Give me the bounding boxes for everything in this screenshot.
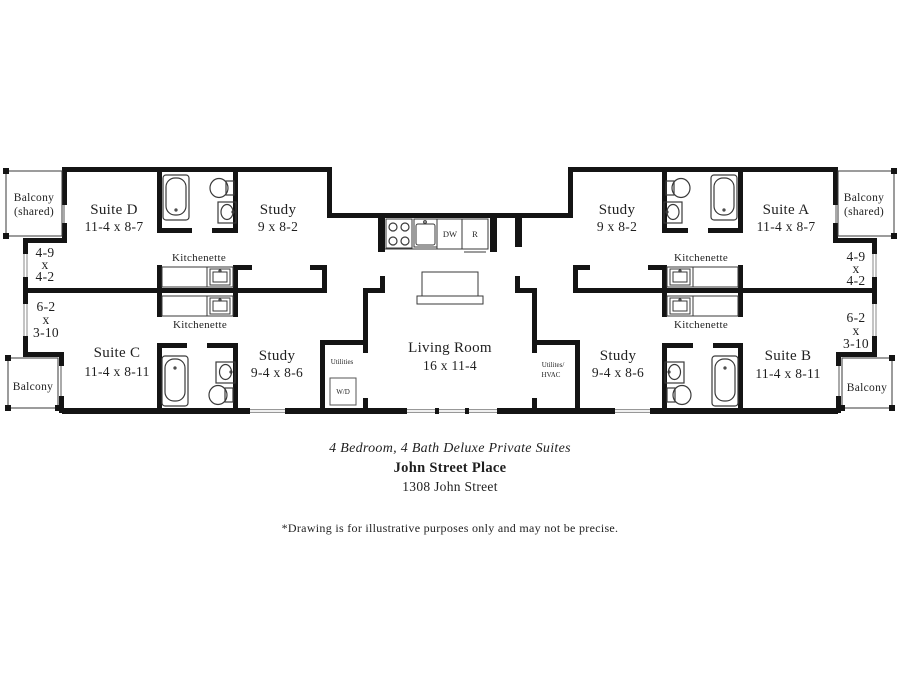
- utilities-hvac-label-1: Utilites/: [542, 361, 565, 369]
- study-lower-left-label: Study: [259, 348, 296, 364]
- toilet-icon: [209, 386, 233, 405]
- property-address: 1308 John Street: [402, 479, 498, 494]
- kitchenette-counter: [162, 296, 233, 316]
- bathtub-icon: [712, 356, 738, 406]
- kitchenette-upper-left-label: Kitchenette: [172, 252, 226, 264]
- balcony-lower-left-label: Balcony: [13, 381, 53, 393]
- kitchen-sink-icon: [414, 219, 437, 247]
- balcony-lower-right-label: Balcony: [847, 382, 887, 394]
- study-upper-right-label: Study: [599, 202, 636, 218]
- utilities-label: Utilities: [331, 358, 354, 366]
- toilet-icon: [667, 386, 691, 405]
- bathtub-icon: [163, 175, 189, 220]
- balcony-shared-left-label: Balcony: [14, 192, 54, 204]
- suite-c-label: Suite C: [94, 345, 141, 361]
- windows: [24, 254, 876, 414]
- plan-tagline: 4 Bedroom, 4 Bath Deluxe Private Suites: [329, 441, 571, 456]
- bathroom-sink-icon: [665, 362, 684, 383]
- study-lower-right-dims: 9-4 x 8-6: [592, 365, 644, 380]
- kitchen-island: [417, 272, 483, 304]
- suite-b-label: Suite B: [765, 348, 812, 364]
- interior-walls: [23, 172, 877, 413]
- bathroom-sink-icon: [216, 362, 235, 383]
- property-name: John Street Place: [394, 460, 507, 476]
- floor-plan-drawing: Balcony (shared) Balcony (shared) Suite …: [0, 0, 900, 695]
- suite-a-label: Suite A: [763, 202, 810, 218]
- closet-upper-right-dim3: 4-2: [847, 273, 866, 288]
- study-upper-right-dims: 9 x 8-2: [597, 219, 637, 234]
- closet-lower-left-dim3: 3-10: [33, 325, 59, 340]
- suite-a-dims: 11-4 x 8-7: [757, 219, 816, 234]
- living-room-label: Living Room: [408, 340, 492, 356]
- bathtub-icon: [711, 175, 737, 220]
- closet-upper-left-dim3: 4-2: [36, 269, 55, 284]
- toilet-icon: [666, 179, 690, 198]
- suite-d-label: Suite D: [90, 202, 138, 218]
- study-lower-left-dims: 9-4 x 8-6: [251, 365, 303, 380]
- living-room-dims: 16 x 11-4: [423, 358, 477, 373]
- balcony-shared-right-sublabel: (shared): [844, 206, 884, 218]
- suite-c-dims: 11-4 x 8-11: [84, 364, 149, 379]
- title-block: 4 Bedroom, 4 Bath Deluxe Private Suites …: [282, 441, 619, 535]
- kitchenette-lower-left-label: Kitchenette: [173, 319, 227, 331]
- study-lower-right-label: Study: [600, 348, 637, 364]
- toilet-icon: [210, 179, 234, 198]
- dishwasher-label: DW: [443, 229, 457, 239]
- disclaimer: *Drawing is for illustrative purposes on…: [282, 521, 619, 535]
- study-upper-left-label: Study: [260, 202, 297, 218]
- kitchenette-counter: [667, 296, 738, 316]
- suite-d-dims: 11-4 x 8-7: [85, 219, 144, 234]
- bathtub-icon: [162, 356, 188, 406]
- kitchenette-lower-right-label: Kitchenette: [674, 319, 728, 331]
- kitchenette-counter: [162, 267, 233, 287]
- utilities-hvac-label-2: HVAC: [542, 371, 561, 379]
- floor-plan-page: Balcony (shared) Balcony (shared) Suite …: [0, 0, 900, 695]
- washer-dryer-label: W/D: [336, 388, 350, 396]
- refrigerator-label: R: [472, 229, 478, 239]
- balcony-shared-right-label: Balcony: [844, 192, 884, 204]
- balcony-shared-left-sublabel: (shared): [14, 206, 54, 218]
- study-upper-left-dims: 9 x 8-2: [258, 219, 298, 234]
- suite-b-dims: 11-4 x 8-11: [755, 366, 820, 381]
- closet-lower-right-dim3: 3-10: [843, 336, 869, 351]
- stove-icon: [386, 219, 412, 248]
- kitchenette-upper-right-label: Kitchenette: [674, 252, 728, 264]
- kitchenette-counter: [667, 267, 738, 287]
